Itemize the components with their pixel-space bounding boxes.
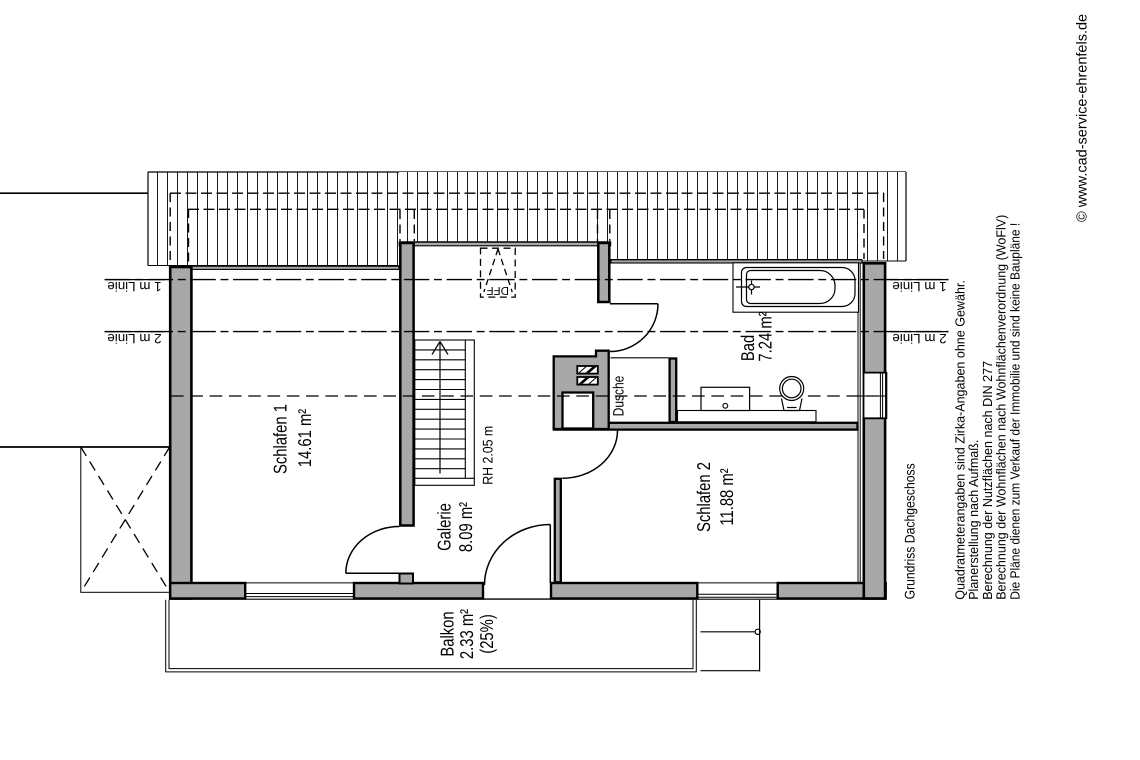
- svg-text:Grundriss Dachgeschoss: Grundriss Dachgeschoss: [902, 463, 918, 599]
- svg-text:2.33 m²: 2.33 m²: [456, 609, 477, 659]
- svg-text:14.61 m²: 14.61 m²: [294, 409, 315, 467]
- svg-text:© www.cad-service-ehrenfels.de: © www.cad-service-ehrenfels.de: [1075, 14, 1091, 222]
- svg-text:Dusche: Dusche: [611, 376, 628, 417]
- svg-text:Schlafen 1: Schlafen 1: [270, 404, 291, 474]
- svg-text:Schlafen 2: Schlafen 2: [693, 462, 714, 532]
- svg-text:DFF: DFF: [487, 284, 509, 296]
- svg-text:(25%): (25%): [476, 614, 497, 653]
- svg-text:1 m Linie: 1 m Linie: [107, 279, 161, 294]
- svg-text:2 m Linie: 2 m Linie: [107, 331, 161, 346]
- svg-text:11.88 m²: 11.88 m²: [716, 468, 737, 525]
- svg-text:RH 2.05 m: RH 2.05 m: [479, 426, 495, 485]
- svg-text:Balkon: Balkon: [437, 611, 458, 656]
- svg-text:Galerie: Galerie: [434, 503, 455, 551]
- svg-text:8.09 m²: 8.09 m²: [455, 502, 476, 552]
- svg-text:Die Pläne dienen zum Verkauf d: Die Pläne dienen zum Verkauf der Immobil…: [1007, 223, 1022, 600]
- svg-text:2 m Linie: 2 m Linie: [892, 331, 946, 346]
- svg-text:7.24 m²: 7.24 m²: [755, 311, 776, 361]
- svg-text:1 m Linie: 1 m Linie: [892, 279, 946, 294]
